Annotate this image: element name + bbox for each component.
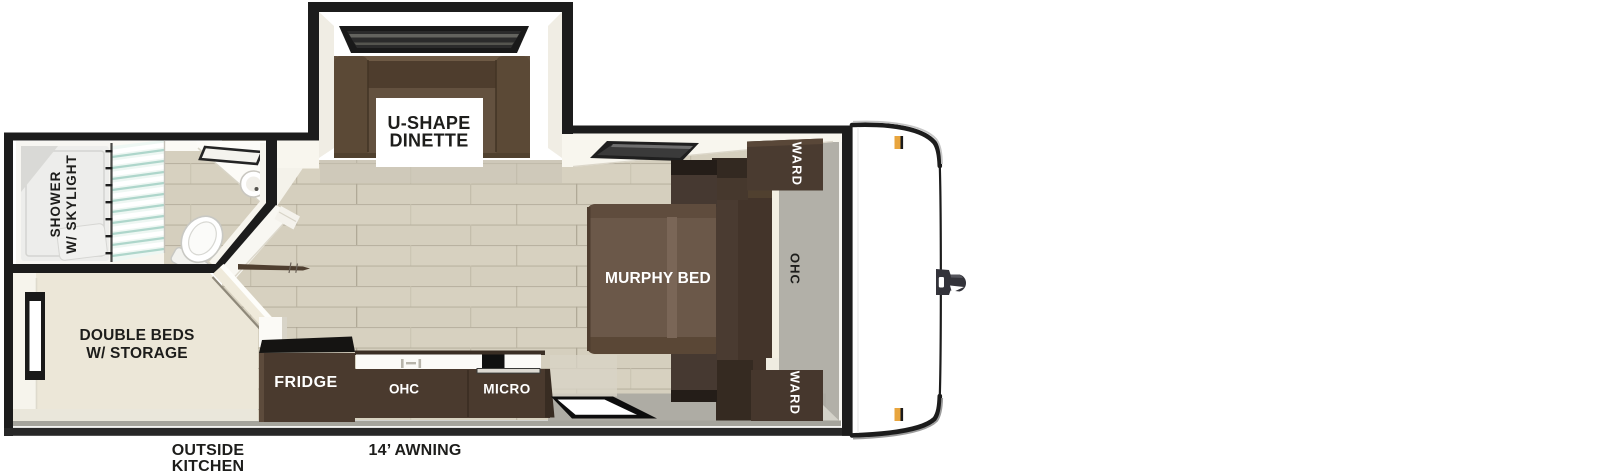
svg-text:KITCHEN: KITCHEN <box>172 458 245 472</box>
svg-text:DOUBLE BEDS: DOUBLE BEDS <box>79 327 194 344</box>
svg-text:W/ STORAGE: W/ STORAGE <box>86 345 188 362</box>
svg-text:DINETTE: DINETTE <box>389 131 468 151</box>
svg-text:W/ SKYLIGHT: W/ SKYLIGHT <box>64 154 79 254</box>
svg-text:MURPHY BED: MURPHY BED <box>605 270 711 287</box>
svg-text:SHOWER: SHOWER <box>48 171 63 238</box>
svg-text:WARD: WARD <box>790 142 805 187</box>
svg-text:OUTSIDE: OUTSIDE <box>172 442 245 459</box>
svg-text:14’ AWNING: 14’ AWNING <box>369 442 462 459</box>
svg-text:MICRO: MICRO <box>483 382 531 397</box>
svg-text:OHC: OHC <box>389 382 419 397</box>
svg-text:WARD: WARD <box>788 371 803 416</box>
svg-text:FRIDGE: FRIDGE <box>274 374 337 391</box>
svg-text:OHC: OHC <box>788 253 803 285</box>
